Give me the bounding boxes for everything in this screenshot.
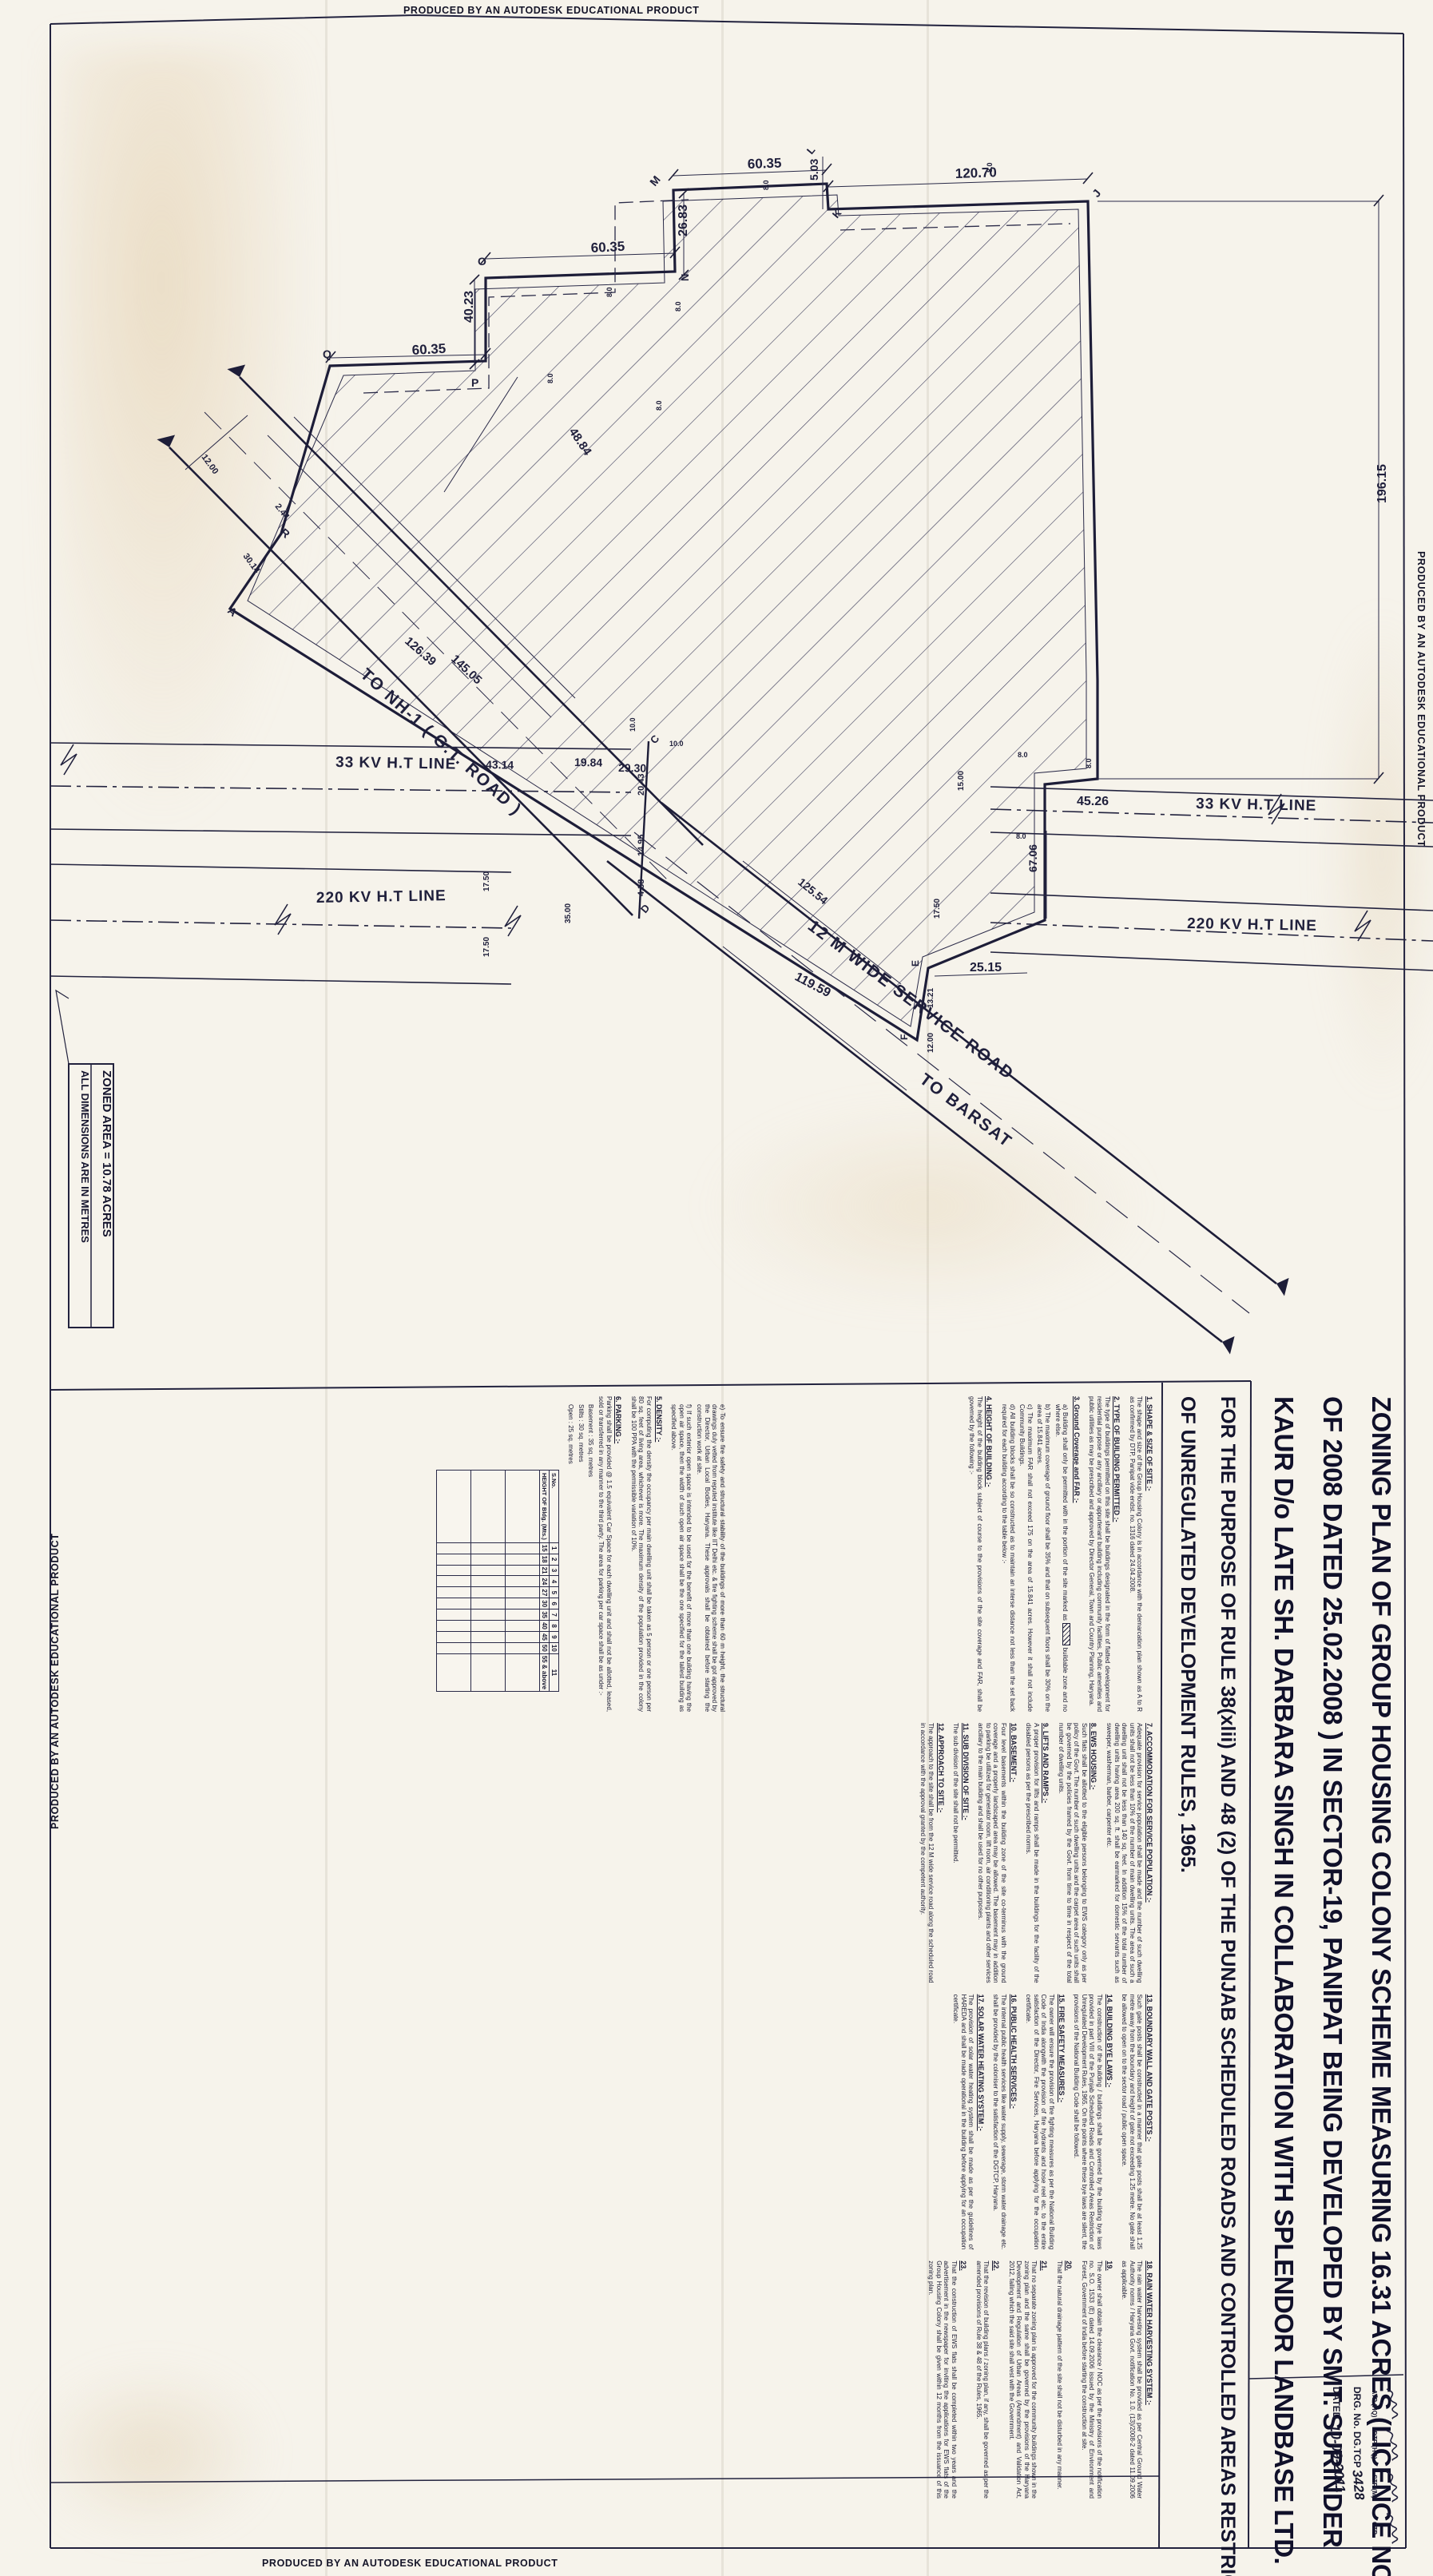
note-paragraph: The owner shall obtain the clearance / N…	[1080, 2260, 1103, 2499]
note-heading: 13. BOUNDARY WALL AND GATE POSTS :-	[1145, 1995, 1153, 2250]
note-heading: 4. HEIGHT OF BUILDING :-	[985, 1396, 993, 1712]
signature-title: CTP	[1371, 2511, 1378, 2545]
purpose-line-1: FOR THE PURPOSE OF RULE 38(xlii) AND 48 …	[1208, 1396, 1248, 2471]
dated-line: DATED 10-09-2011	[1329, 2387, 1345, 2545]
table-cell-sno: 6	[550, 1598, 559, 1610]
note-paragraph: Parking shall be provided @ 1.5 equivale…	[597, 1396, 612, 1712]
plan-label: 220 KV H.T LINE	[1187, 915, 1317, 935]
table-cell-height: 30	[540, 1598, 550, 1610]
table-cell-sno: 11	[550, 1653, 559, 1691]
note-paragraph: The height of the building block subject…	[968, 1396, 983, 1712]
plan-label: 13.21	[927, 988, 935, 1008]
note-paragraph: The construction of the building / build…	[1073, 1995, 1103, 2250]
note-subitem: a) Building shall only be permitted with…	[1054, 1404, 1070, 1712]
note-paragraph: The type of buildings permitted on this …	[1088, 1396, 1111, 1712]
signature-scribble	[1380, 2470, 1404, 2503]
table-cell-sno: 10	[550, 1642, 559, 1653]
table-cell-sno: 8	[550, 1621, 559, 1632]
note-heading: 2. TYPE OF BUILDING PERMITTED :-	[1113, 1396, 1121, 1712]
note-paragraph: Adequate provision for service populatio…	[1105, 1723, 1143, 1983]
plan-label: 26.83	[677, 204, 690, 236]
table-cell-height: 35	[540, 1610, 550, 1621]
date-handwritten: 10-09-2011	[1326, 2423, 1348, 2493]
note-subitem: Stilts : 30 sq. metres	[577, 1404, 585, 1712]
note-heading: 1. SHAPE & SIZE OF SITE :-	[1145, 1396, 1153, 1712]
note-paragraph: The internal public health services like…	[992, 1995, 1007, 2250]
notes-column-3: 13. BOUNDARY WALL AND GATE POSTS :-Such …	[565, 1995, 1158, 2250]
table-cell-sno: 1	[550, 1542, 559, 1554]
plan-label: 35.00	[564, 903, 573, 923]
table-cell-sno: 2	[550, 1554, 559, 1565]
approval-signature-block: ATP (HQ) DTP (HQ) STP (M) CTP DRG. No. D…	[1257, 2387, 1404, 2545]
table-cell-height: 55 & above	[540, 1653, 550, 1691]
title-line-1: ZONING PLAN OF GROUP HOUSING COLONY SCHE…	[1357, 1396, 1406, 2372]
plan-label: 40.23	[462, 291, 476, 323]
dimensions-note: ALL DIMENSIONS ARE IN METRES	[72, 1070, 91, 1324]
drawing-title: ZONING PLAN OF GROUP HOUSING COLONY SCHE…	[1257, 1396, 1406, 2372]
table-cell-height: 45	[540, 1632, 550, 1643]
note-heading: 14. BUILDING BYE LAWS :-	[1105, 1995, 1113, 2250]
plan-label: 10.0	[669, 740, 684, 748]
note-paragraph: That the construction of EWS flats shall…	[927, 2260, 957, 2499]
plan-label: P	[471, 376, 478, 389]
plan-label: A	[225, 604, 240, 619]
plan-label: 20.43	[637, 773, 646, 796]
signature-title: STP (M)	[1371, 2470, 1378, 2503]
note-paragraph: A proper provision for lifts and ramps s…	[1025, 1723, 1040, 1983]
notes-column-4: 18. RAIN WATER HARVESTING SYSTEM :-The r…	[565, 2260, 1158, 2499]
note-heading: 21.	[1039, 2260, 1047, 2499]
plan-label: E	[910, 960, 921, 966]
note-paragraph: Four level basements within the building…	[977, 1723, 1007, 1983]
height-setback-table: S.No.1234567891011HEIGHT OF Bldg. (Mts.)…	[342, 1470, 559, 1708]
plan-label: 8.0	[674, 301, 682, 312]
note-heading: 11. SUB DIVISION OF SITE :-	[961, 1723, 969, 1983]
plan-label: 8.0	[546, 373, 554, 383]
note-subitem: b) The maximum coverage of ground floor …	[1036, 1404, 1051, 1712]
note-heading: 8. EWS HOUSING :-	[1090, 1723, 1098, 1983]
plan-label: 8.0	[1016, 832, 1026, 840]
plan-label: 33 KV H.T LINE	[335, 754, 457, 773]
purpose-statement: FOR THE PURPOSE OF RULE 38(xlii) AND 48 …	[1165, 1396, 1248, 2471]
plan-label: 17.50	[482, 871, 491, 891]
note-heading: 3. Ground Coverage and FAR :-	[1072, 1396, 1080, 1712]
note-heading: 9. LIFTS AND RAMPS :-	[1042, 1723, 1050, 1983]
plan-label: F	[899, 1034, 910, 1040]
purpose-line-2: OF UNREGULATED DEVELOPMENT RULES, 1965.	[1168, 1396, 1208, 2471]
plan-label: M	[647, 173, 663, 189]
note-paragraph: For computing the density the occupancy …	[629, 1396, 653, 1712]
signature-scribble	[1380, 2387, 1404, 2420]
plan-label: 45.26	[1077, 795, 1109, 808]
note-paragraph: The sub division of the site shall not b…	[952, 1723, 960, 1983]
title-line-2: OF 2008 DATED 25.02.2008 ) IN SECTOR-19,…	[1308, 1396, 1357, 2372]
note-subitem: d) All building blocks shall be so const…	[1001, 1404, 1016, 1712]
table-cell-height: 27	[540, 1587, 550, 1598]
note-heading: 19.	[1105, 2260, 1113, 2499]
note-heading: 16. PUBLIC HEALTH SERVICES :-	[1009, 1995, 1017, 2250]
plan-label: 8.0	[1085, 758, 1093, 768]
plan-label: J	[1090, 187, 1103, 200]
note-heading: 20.	[1065, 2260, 1073, 2499]
scanned-zoning-plan-sheet: PRODUCED BY AN AUTODESK EDUCATIONAL PROD…	[0, 0, 1433, 2576]
note-heading: 15. FIRE SAFETY MEASURES :-	[1057, 1995, 1065, 2250]
signature: STP (M)	[1371, 2470, 1404, 2503]
table-cell-sno: 5	[550, 1587, 559, 1598]
table-cell-height: 21	[540, 1565, 550, 1576]
plan-label: 29.30	[618, 761, 647, 775]
table-header-sno: S.No.	[550, 1471, 559, 1543]
note-paragraph: That the natural drainage pattern of the…	[1055, 2260, 1063, 2499]
note-heading: 23.	[959, 2260, 967, 2499]
plan-label: 60.35	[411, 341, 446, 358]
table-cell-sno: 4	[550, 1576, 559, 1587]
plan-label: 17.50	[482, 937, 491, 957]
plan-label: O	[478, 255, 486, 268]
drg-number-line: DRG. No. DG.TCP 3428	[1350, 2387, 1366, 2545]
note-paragraph: The shape and size of the Group Housing …	[1128, 1396, 1143, 1712]
plan-label: 12.00	[200, 453, 220, 476]
signature: CTP	[1371, 2511, 1404, 2545]
zoning-notes: 1. SHAPE & SIZE OF SITE :-The shape and …	[53, 1396, 1158, 2499]
plan-label: 8.0	[655, 400, 663, 411]
note-heading: 7. ACCOMMODATION FOR SERVICE POPULATION …	[1145, 1723, 1153, 1983]
note-paragraph: The approach to the site shall be from t…	[919, 1723, 935, 1983]
table-cell-height: 15	[540, 1542, 550, 1554]
plan-label: 196.15	[1375, 464, 1389, 503]
table-header-height: HEIGHT OF Bldg. (Mts.)	[540, 1471, 550, 1543]
note-paragraph: That the revision of building plans / zo…	[975, 2260, 990, 2499]
plan-label: 30.14	[241, 552, 262, 576]
plan-label: 67.06	[1026, 844, 1039, 872]
signature: DTP (HQ)	[1371, 2428, 1404, 2462]
note-subitem: c) The maximum FAR shall not exceed 175 …	[1018, 1404, 1034, 1712]
plan-label: 19.84	[574, 756, 603, 769]
plan-label: 8.0	[605, 287, 613, 297]
note-paragraph: Such flats shall be allotted to the elig…	[1057, 1723, 1087, 1983]
note-heading: 18. RAIN WATER HARVESTING SYSTEM :-	[1145, 2260, 1153, 2499]
plan-label: Q	[323, 347, 331, 360]
table-placeholder	[726, 1396, 966, 1712]
plan-label: 220 KV H.T LINE	[316, 887, 447, 907]
notes-column-1: 1. SHAPE & SIZE OF SITE :-The shape and …	[565, 1396, 1158, 1712]
plan-label: 8.0	[1018, 751, 1028, 759]
note-paragraph: The rain water harvesting system shall b…	[1121, 2260, 1144, 2499]
plan-label: 8.0	[762, 180, 770, 190]
note-heading: 12. APPROACH TO SITE :-	[936, 1723, 944, 1983]
plan-label: 43.14	[486, 758, 514, 772]
plan-label: TO BARSAT	[916, 1070, 1016, 1152]
note-paragraph: The provision of solar water heating sys…	[952, 1995, 975, 2250]
note-paragraph: Such gate posts shall be constructed in …	[1121, 1995, 1144, 2250]
plan-label: 8.0	[986, 162, 994, 173]
signature-scribble	[1380, 2511, 1404, 2545]
plan-label: 14.95	[637, 834, 646, 856]
signature-title: ATP (HQ)	[1371, 2387, 1378, 2420]
table-cell-sno: 7	[550, 1610, 559, 1621]
plan-label: 12.00	[927, 1033, 935, 1053]
note-heading: 6. PARKING :-	[614, 1396, 622, 1712]
plan-label: 25.15	[970, 961, 1002, 974]
plan-label: 4.38	[637, 879, 646, 896]
plan-label: 17.50	[933, 899, 942, 919]
note-paragraph: That no separate zoning plan is approved…	[1007, 2260, 1038, 2499]
note-heading: 10. BASEMENT :-	[1009, 1723, 1017, 1983]
table-cell-height: 24	[540, 1576, 550, 1587]
note-subitem: f) If such exterior open space is intend…	[670, 1404, 693, 1712]
table-cell-sno: 9	[550, 1632, 559, 1643]
plan-label: 60.35	[747, 156, 781, 172]
note-subitem: Open : 25 sq. metres	[567, 1404, 575, 1712]
table-cell-height: 18	[540, 1554, 550, 1565]
hatch-legend-swatch	[1062, 1623, 1070, 1645]
signature-title: DTP (HQ)	[1371, 2428, 1378, 2462]
table-cell-height: 40	[540, 1621, 550, 1632]
note-heading: 22.	[992, 2260, 1000, 2499]
plan-label: 10.0	[629, 717, 637, 732]
plan-label: 60.35	[590, 239, 625, 256]
notes-column-2: 7. ACCOMMODATION FOR SERVICE POPULATION …	[565, 1723, 1158, 1983]
note-subitem: e) To ensure fire safety and structural …	[695, 1404, 725, 1712]
note-subitem: Basement : 35 sq. metres	[587, 1404, 595, 1712]
drg-number-handwritten: 3428	[1348, 2470, 1367, 2501]
plan-label: 15.00	[957, 771, 966, 791]
title-line-3: KAUR D/o LATE SH. DARBARA SINGH IN COLLA…	[1260, 1396, 1308, 2372]
note-heading: 5. DENSITY :-	[654, 1396, 662, 1712]
note-paragraph: The owner will ensure the provision of f…	[1025, 1995, 1055, 2250]
plan-label: 33 KV H.T LINE	[1196, 796, 1317, 815]
signature: ATP (HQ)	[1371, 2387, 1404, 2420]
plan-label: N	[679, 274, 691, 281]
plan-label: L	[804, 144, 818, 157]
signature-scribble	[1380, 2428, 1404, 2462]
note-heading: 17. SOLAR WATER HEATING SYSTEM :-	[976, 1995, 984, 2250]
table-cell-sno: 3	[550, 1565, 559, 1576]
table-cell-height: 50	[540, 1642, 550, 1653]
plan-label: 5.03	[808, 159, 820, 181]
zoned-area-note: ZONED AREA = 10.78 ACRES	[93, 1070, 113, 1324]
